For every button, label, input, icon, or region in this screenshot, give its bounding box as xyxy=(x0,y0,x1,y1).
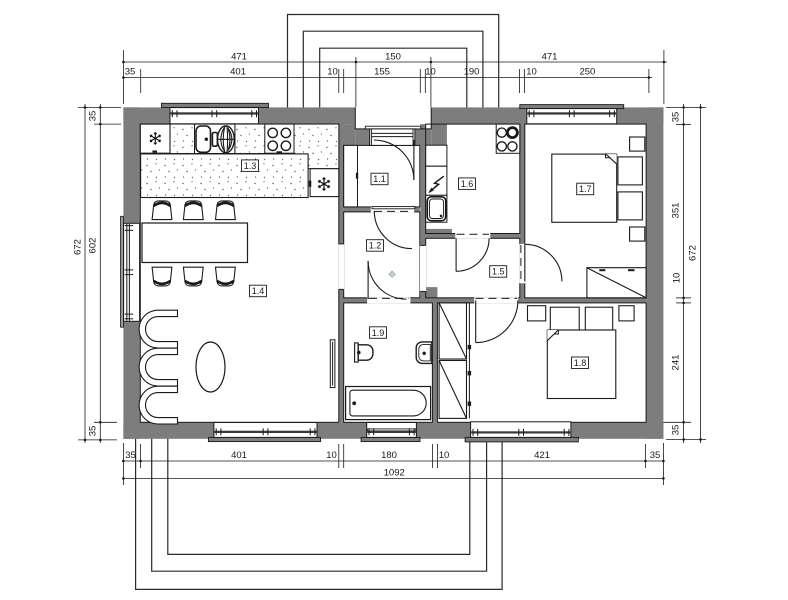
svg-text:35: 35 xyxy=(125,67,136,78)
svg-text:250: 250 xyxy=(579,67,595,78)
svg-text:401: 401 xyxy=(231,450,247,461)
svg-text:471: 471 xyxy=(542,52,558,63)
svg-text:1.6: 1.6 xyxy=(461,179,474,189)
svg-text:1.5: 1.5 xyxy=(492,267,505,277)
svg-text:1.3: 1.3 xyxy=(244,161,257,171)
svg-text:1.7: 1.7 xyxy=(579,184,592,194)
svg-text:1092: 1092 xyxy=(384,468,405,479)
svg-text:155: 155 xyxy=(374,67,390,78)
svg-text:35: 35 xyxy=(650,450,661,461)
svg-text:1.9: 1.9 xyxy=(372,328,385,338)
svg-text:35: 35 xyxy=(88,426,99,437)
svg-text:35: 35 xyxy=(125,450,136,461)
svg-text:1.2: 1.2 xyxy=(369,241,382,251)
svg-text:180: 180 xyxy=(381,450,397,461)
svg-text:10: 10 xyxy=(326,450,337,461)
svg-text:672: 672 xyxy=(688,245,699,261)
svg-text:10: 10 xyxy=(327,67,338,78)
svg-text:35: 35 xyxy=(671,425,682,436)
svg-text:421: 421 xyxy=(534,450,550,461)
svg-text:1.8: 1.8 xyxy=(574,358,587,368)
svg-text:351: 351 xyxy=(671,203,682,219)
svg-text:35: 35 xyxy=(88,111,99,122)
svg-text:10: 10 xyxy=(439,450,450,461)
svg-text:471: 471 xyxy=(231,52,247,63)
svg-text:241: 241 xyxy=(671,355,682,371)
svg-text:10: 10 xyxy=(526,67,537,78)
svg-text:10: 10 xyxy=(425,67,436,78)
svg-text:672: 672 xyxy=(73,239,84,255)
svg-text:401: 401 xyxy=(230,67,246,78)
svg-text:190: 190 xyxy=(464,67,480,78)
svg-text:1.1: 1.1 xyxy=(373,174,386,184)
svg-text:1.4: 1.4 xyxy=(252,286,265,296)
svg-text:35: 35 xyxy=(671,112,682,123)
svg-text:602: 602 xyxy=(88,238,99,254)
svg-text:10: 10 xyxy=(672,273,683,284)
svg-text:150: 150 xyxy=(385,52,401,63)
